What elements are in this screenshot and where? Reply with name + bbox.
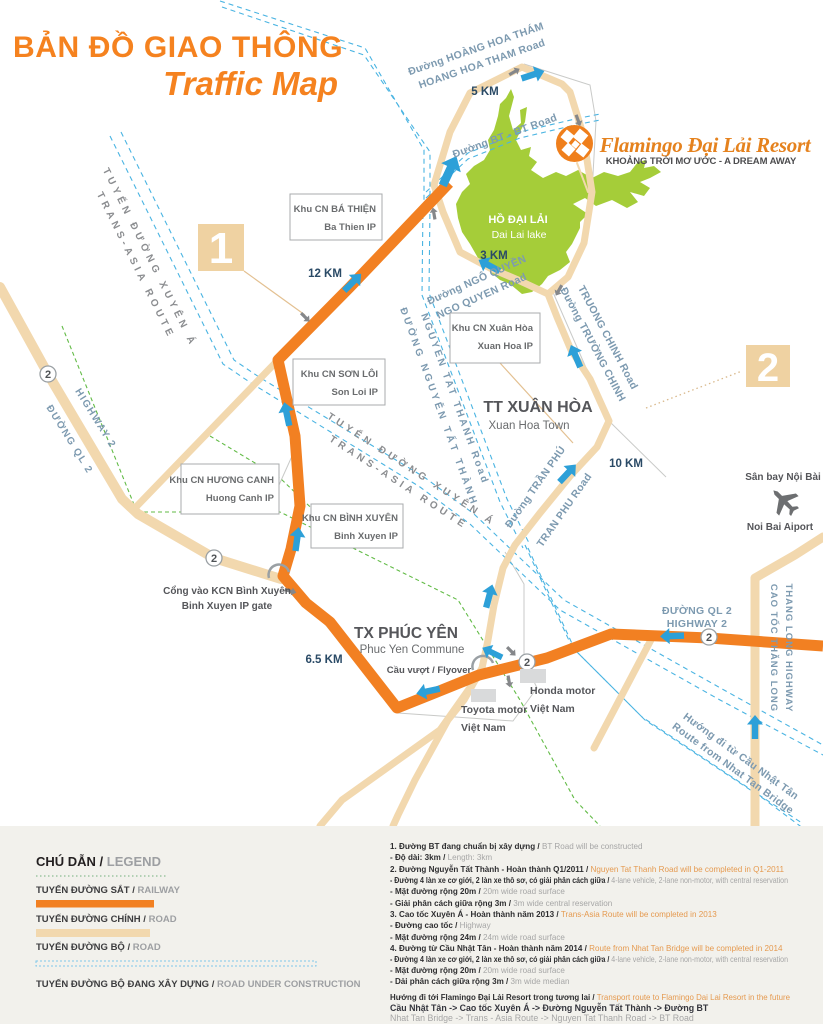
svg-text:HỒ ĐẠI LẢI: HỒ ĐẠI LẢI [488, 213, 547, 226]
svg-text:3 KM: 3 KM [480, 250, 507, 262]
svg-text:Honda motor: Honda motor [530, 685, 595, 697]
svg-text:Việt Nam: Việt Nam [461, 722, 506, 734]
svg-text:- Dải phân cách giữa rộng 3m /: - Dải phân cách giữa rộng 3m / 3m wide m… [390, 977, 569, 986]
svg-text:Xuan Hoa IP: Xuan Hoa IP [478, 341, 534, 352]
svg-text:THANG LONG HIGHWAY: THANG LONG HIGHWAY [783, 583, 794, 712]
svg-text:CAO TỐC THĂNG LONG: CAO TỐC THĂNG LONG [768, 584, 780, 712]
svg-text:Ba Thien IP: Ba Thien IP [324, 222, 376, 233]
svg-text:- Đường 4 làn xe cơ giới, 2 là: - Đường 4 làn xe cơ giới, 2 làn xe thô s… [390, 876, 788, 885]
svg-text:TX PHÚC YÊN: TX PHÚC YÊN [354, 624, 458, 642]
svg-text:2: 2 [211, 553, 217, 565]
svg-text:Huong Canh IP: Huong Canh IP [206, 493, 275, 504]
svg-text:Traffic Map: Traffic Map [163, 65, 338, 102]
svg-text:3. Cao tốc Xuyên Á - Hoàn thàn: 3. Cao tốc Xuyên Á - Hoàn thành năm 2013… [390, 910, 717, 919]
svg-text:TUYẾN ĐƯỜNG BỘ ĐANG XÂY DỰNG /: TUYẾN ĐƯỜNG BỘ ĐANG XÂY DỰNG / ROAD UNDE… [36, 978, 361, 990]
svg-text:Son Loi IP: Son Loi IP [332, 387, 379, 398]
svg-text:- Mặt đường rộng 20m / 20m wid: - Mặt đường rộng 20m / 20m wide road sur… [390, 887, 565, 896]
svg-text:Việt Nam: Việt Nam [530, 703, 575, 715]
svg-text:TUYẾN ĐƯỜNG SẮT / RAILWAY: TUYẾN ĐƯỜNG SẮT / RAILWAY [36, 884, 181, 896]
svg-text:10 KM: 10 KM [609, 458, 643, 470]
svg-text:Dai Lai lake: Dai Lai lake [492, 229, 547, 241]
svg-text:Cầu Nhật Tân -> Cao tốc Xuyê: Cầu Nhật Tân -> Cao tốc Xuyên Á -> Đường… [390, 1003, 709, 1013]
svg-text:Toyota motor: Toyota motor [461, 704, 527, 716]
svg-text:Khu CN Xuân Hòa: Khu CN Xuân Hòa [452, 323, 534, 334]
svg-text:Xuan Hoa Town: Xuan Hoa Town [489, 420, 570, 432]
svg-text:4. Đường từ Cầu Nhật Tân - Hoà: 4. Đường từ Cầu Nhật Tân - Hoàn thành nă… [390, 944, 783, 953]
svg-text:1: 1 [209, 224, 233, 273]
svg-text:Phuc Yen Commune: Phuc Yen Commune [360, 644, 465, 656]
svg-text:Cổng vào KCN Bình Xuyên: Cổng vào KCN Bình Xuyên [163, 585, 291, 597]
svg-text:Noi Bai Aiport: Noi Bai Aiport [747, 522, 814, 533]
svg-text:- Mặt đường rộng 24m / 24m wid: - Mặt đường rộng 24m / 24m wide road sur… [390, 933, 565, 942]
svg-text:- Đường cao tốc / Highway: - Đường cao tốc / Highway [390, 921, 492, 930]
svg-text:Khu CN SƠN LÔI: Khu CN SƠN LÔI [301, 368, 378, 380]
svg-text:Nhat Tan Bridge -> Trans - A: Nhat Tan Bridge -> Trans - Asia Route ->… [390, 1013, 694, 1023]
svg-text:- Mặt đường rộng 20m / 20m wid: - Mặt đường rộng 20m / 20m wide road sur… [390, 966, 565, 975]
svg-text:- Giải phân cách giữa rộng 3m: - Giải phân cách giữa rộng 3m / 3m wide … [390, 899, 612, 908]
svg-text:6.5 KM: 6.5 KM [305, 654, 342, 666]
svg-text:Binh Xuyen IP: Binh Xuyen IP [334, 531, 399, 542]
svg-text:Hướng đi tới Flamingo Đại Lải: Hướng đi tới Flamingo Đại Lải Resort tro… [390, 992, 790, 1002]
svg-text:TUYẾN ĐƯỜNG BỘ / ROAD: TUYẾN ĐƯỜNG BỘ / ROAD [36, 941, 161, 953]
svg-text:- Độ dài: 3km / Length: 3km: - Độ dài: 3km / Length: 3km [390, 853, 492, 862]
svg-text:5 KM: 5 KM [471, 86, 498, 98]
svg-text:- Đường 4 làn xe cơ giới, 2 là: - Đường 4 làn xe cơ giới, 2 làn xe thô s… [390, 955, 788, 964]
svg-text:Binh Xuyen IP gate: Binh Xuyen IP gate [182, 601, 273, 612]
svg-text:2: 2 [757, 346, 779, 390]
svg-text:Khu CN HƯƠNG CANH: Khu CN HƯƠNG CANH [169, 475, 274, 486]
svg-text:2: 2 [524, 657, 530, 669]
svg-text:CHÚ DẪN / LEGEND: CHÚ DẪN / LEGEND [36, 854, 161, 869]
svg-text:Khu CN BÌNH XUYÊN: Khu CN BÌNH XUYÊN [302, 512, 398, 524]
svg-text:12 KM: 12 KM [308, 268, 342, 280]
svg-text:2: 2 [706, 632, 712, 644]
svg-text:HIGHWAY 2: HIGHWAY 2 [667, 618, 727, 630]
svg-text:2: 2 [45, 369, 51, 381]
svg-text:Cầu vượt / Flyover: Cầu vượt / Flyover [387, 665, 472, 676]
svg-text:TUYẾN ĐƯỜNG CHÍNH / ROAD: TUYẾN ĐƯỜNG CHÍNH / ROAD [36, 913, 177, 925]
svg-text:BẢN ĐỒ GIAO THÔNG: BẢN ĐỒ GIAO THÔNG [13, 30, 343, 64]
svg-text:ĐƯỜNG QL 2: ĐƯỜNG QL 2 [662, 604, 732, 617]
svg-text:Khu CN BÁ THIỆN: Khu CN BÁ THIỆN [294, 203, 376, 215]
svg-text:Sân bay Nội Bài: Sân bay Nội Bài [745, 472, 821, 483]
svg-text:2. Đường Nguyễn Tất Thành - Ho: 2. Đường Nguyễn Tất Thành - Hoàn thành Q… [390, 865, 784, 874]
svg-text:TT XUÂN HÒA: TT XUÂN HÒA [483, 397, 593, 416]
svg-text:KHOẢNG TRỜI MƠ ƯỚC - A DREAM A: KHOẢNG TRỜI MƠ ƯỚC - A DREAM AWAY [606, 155, 797, 167]
svg-text:1. Đường BT đang chuẩn bị xây: 1. Đường BT đang chuẩn bị xây dựng / BT … [390, 842, 643, 851]
svg-text:Flamingo Đại Lải Resort: Flamingo Đại Lải Resort [599, 133, 812, 157]
